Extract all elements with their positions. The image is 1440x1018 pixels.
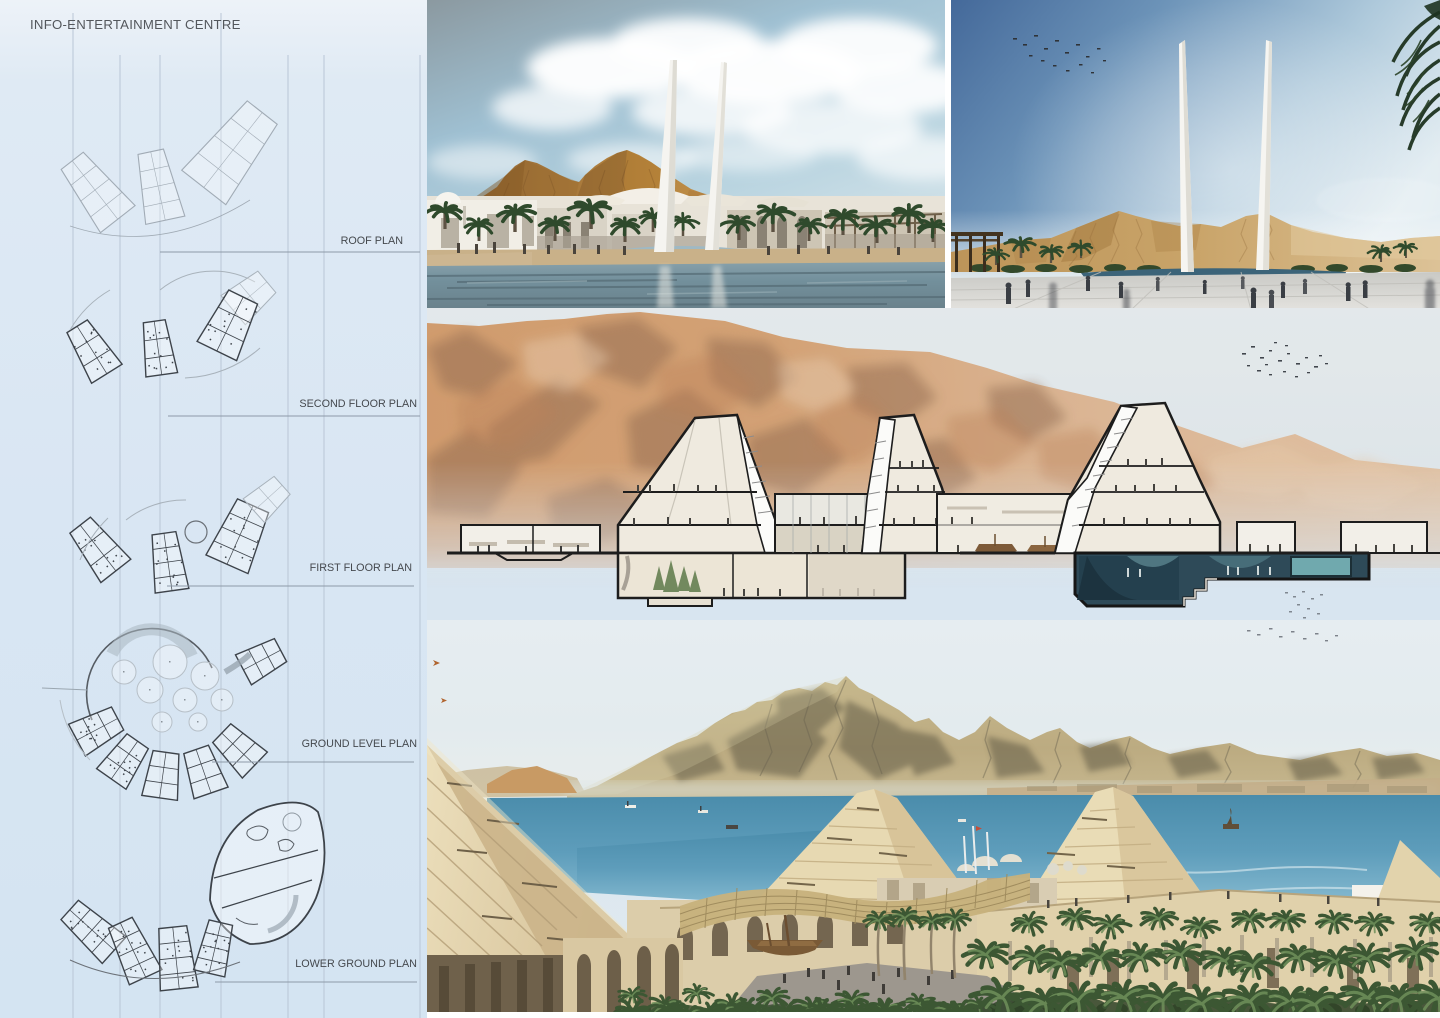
svg-text:FIRST FLOOR PLAN: FIRST FLOOR PLAN: [310, 562, 412, 574]
svg-text:INFO-ENTERTAINMENT CENTRE: INFO-ENTERTAINMENT CENTRE: [30, 17, 241, 32]
svg-text:SECOND FLOOR PLAN: SECOND FLOOR PLAN: [299, 398, 417, 410]
svg-text:GROUND LEVEL PLAN: GROUND LEVEL PLAN: [302, 738, 417, 750]
svg-text:ROOF PLAN: ROOF PLAN: [341, 235, 403, 247]
svg-text:LOWER GROUND PLAN: LOWER GROUND PLAN: [295, 958, 417, 970]
